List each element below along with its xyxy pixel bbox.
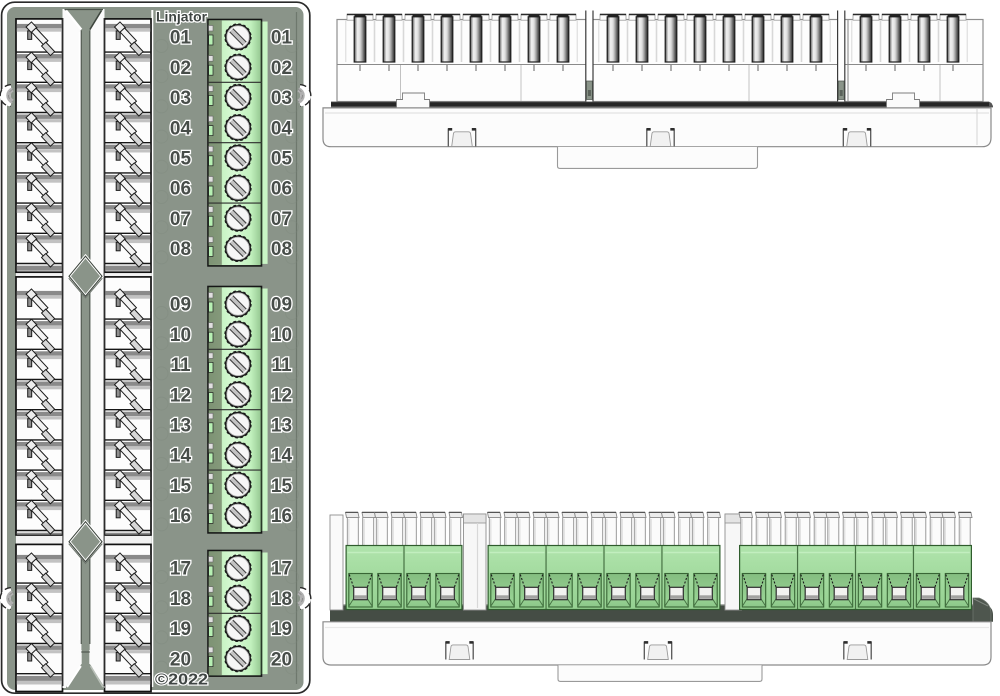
svg-text:04: 04 — [271, 118, 293, 139]
svg-text:11: 11 — [170, 355, 191, 376]
svg-text:01: 01 — [170, 28, 192, 49]
svg-text:18: 18 — [271, 589, 292, 610]
svg-text:08: 08 — [271, 239, 292, 260]
svg-text:07: 07 — [170, 209, 191, 230]
svg-text:07: 07 — [271, 209, 292, 230]
svg-text:©2022: ©2022 — [155, 672, 208, 689]
svg-text:04: 04 — [170, 118, 192, 139]
svg-text:05: 05 — [170, 149, 192, 170]
svg-text:01: 01 — [271, 28, 293, 49]
svg-text:19: 19 — [271, 619, 292, 640]
svg-text:06: 06 — [170, 179, 191, 200]
svg-text:13: 13 — [271, 416, 292, 437]
svg-text:02: 02 — [170, 58, 191, 79]
svg-text:15: 15 — [170, 476, 192, 497]
svg-text:18: 18 — [170, 589, 191, 610]
svg-text:14: 14 — [271, 446, 293, 467]
svg-text:15: 15 — [271, 476, 293, 497]
svg-text:14: 14 — [170, 446, 192, 467]
svg-text:09: 09 — [271, 295, 292, 316]
svg-text:08: 08 — [170, 239, 191, 260]
svg-text:03: 03 — [271, 88, 292, 109]
svg-text:17: 17 — [271, 559, 292, 580]
svg-text:19: 19 — [170, 619, 191, 640]
svg-text:20: 20 — [170, 649, 191, 670]
svg-text:12: 12 — [271, 385, 292, 406]
svg-text:13: 13 — [170, 416, 191, 437]
svg-text:Linjator: Linjator — [156, 9, 208, 25]
svg-text:16: 16 — [271, 506, 292, 527]
svg-text:02: 02 — [271, 58, 292, 79]
svg-text:11: 11 — [271, 355, 292, 376]
svg-text:05: 05 — [271, 149, 293, 170]
svg-text:10: 10 — [271, 325, 292, 346]
svg-text:09: 09 — [170, 295, 191, 316]
svg-text:12: 12 — [170, 385, 191, 406]
svg-text:06: 06 — [271, 179, 292, 200]
svg-text:03: 03 — [170, 88, 191, 109]
svg-text:20: 20 — [271, 649, 292, 670]
svg-text:10: 10 — [170, 325, 191, 346]
svg-text:16: 16 — [170, 506, 191, 527]
svg-text:17: 17 — [170, 559, 191, 580]
